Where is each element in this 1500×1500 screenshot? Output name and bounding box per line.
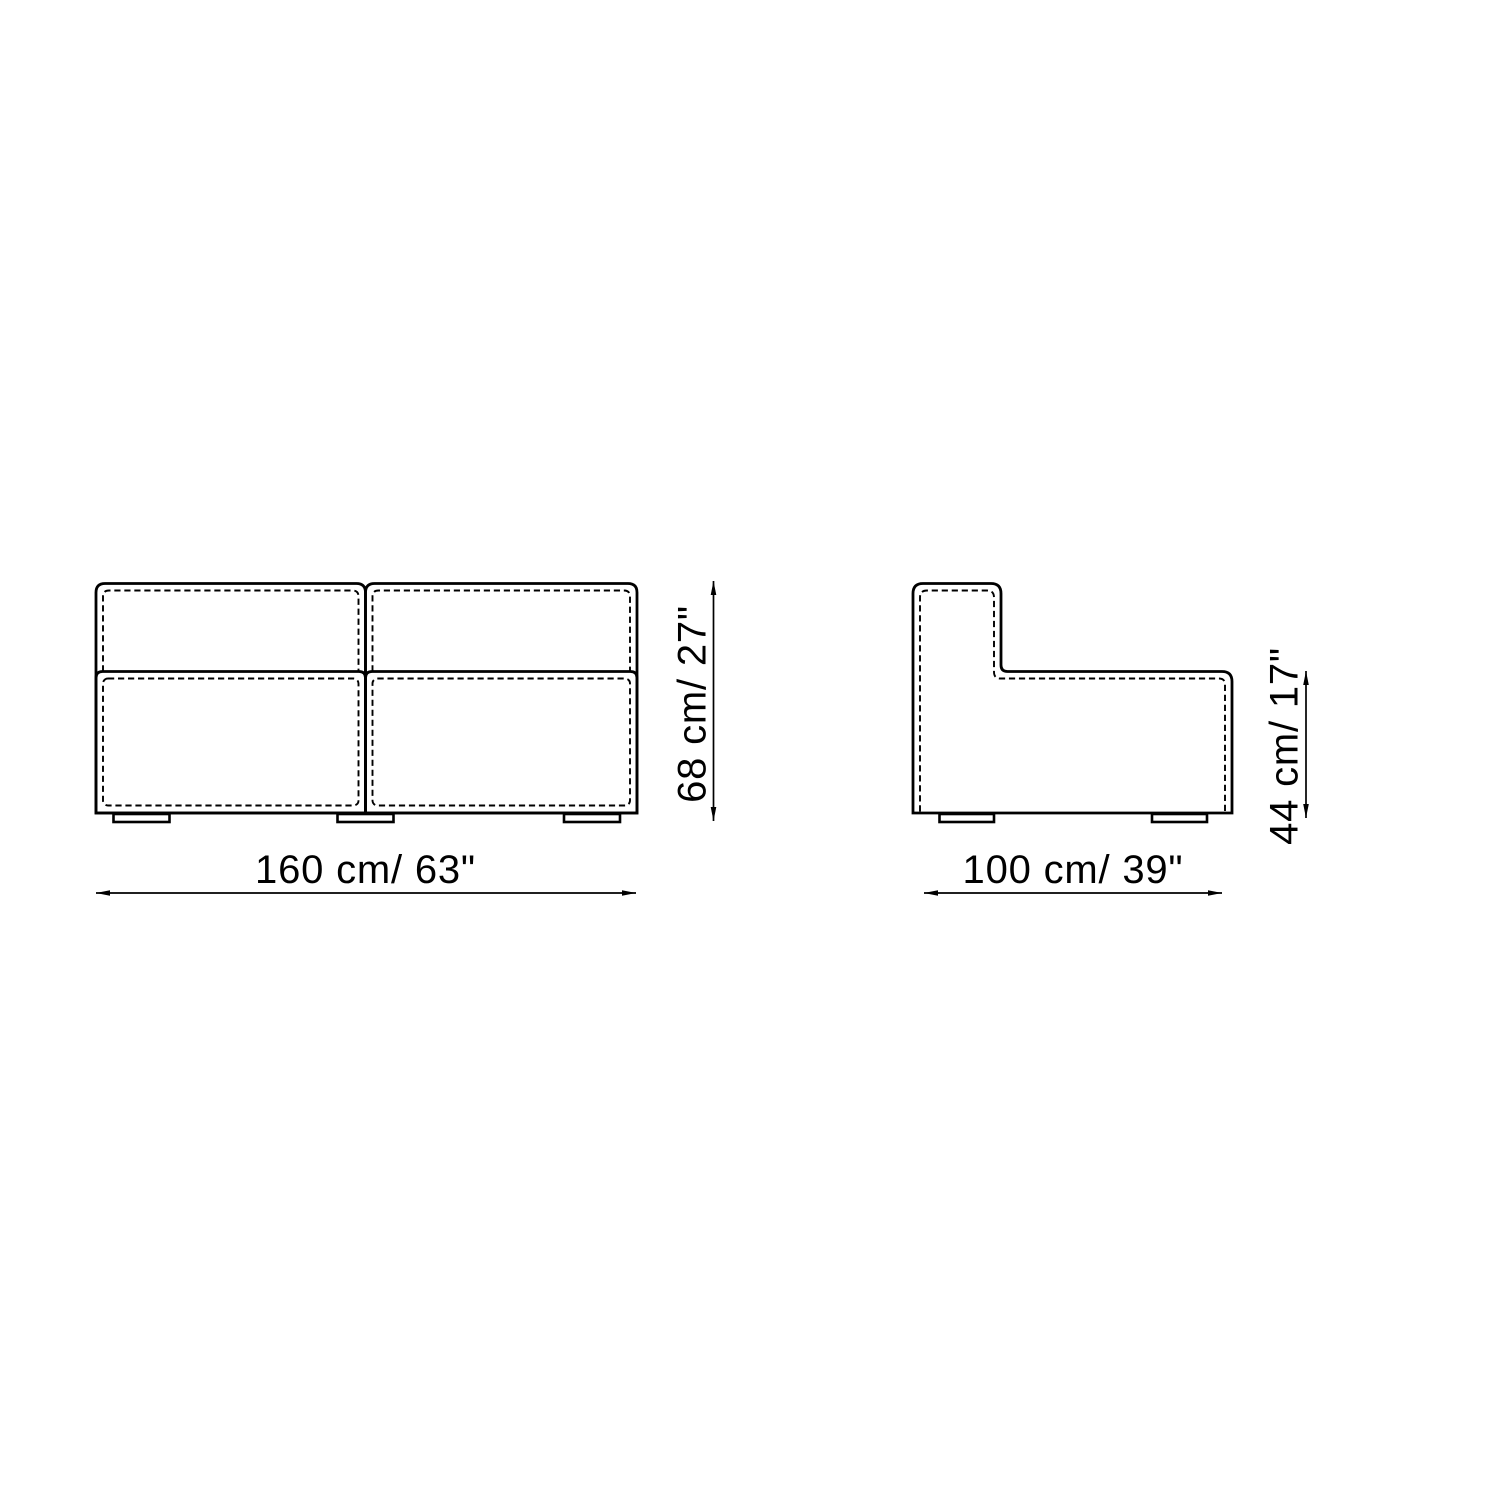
svg-text:44 cm/ 17": 44 cm/ 17": [1263, 647, 1307, 845]
svg-text:68 cm/ 27": 68 cm/ 27": [671, 605, 715, 803]
svg-text:100 cm/ 39": 100 cm/ 39": [963, 848, 1184, 892]
svg-text:160 cm/ 63": 160 cm/ 63": [255, 848, 476, 892]
